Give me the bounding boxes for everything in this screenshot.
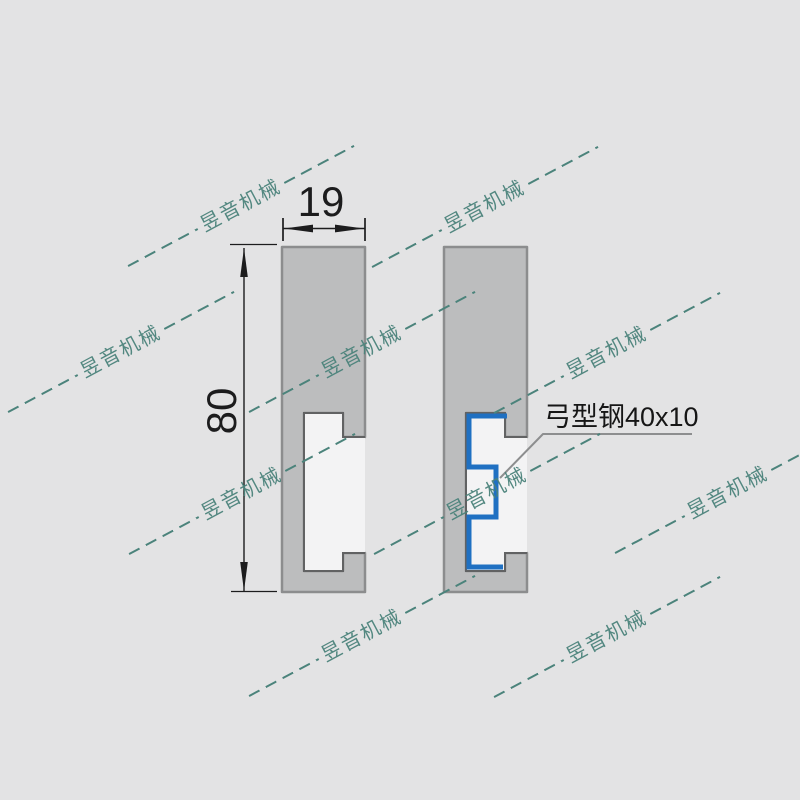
dimension-height: 80 xyxy=(198,245,277,592)
dimension-height-arrow-top xyxy=(240,248,248,277)
dimension-height-arrow-bottom xyxy=(240,562,248,591)
callout-label: 弓型钢40x10 xyxy=(544,402,699,432)
dimension-width-text: 19 xyxy=(298,178,345,225)
technical-drawing: 19 80 弓型钢40x10 xyxy=(0,0,800,800)
dimension-width: 19 xyxy=(283,178,365,241)
dimension-width-arrow-left xyxy=(284,225,313,233)
callout-bow-steel: 弓型钢40x10 xyxy=(500,402,699,478)
dimension-width-arrow-right xyxy=(335,225,364,233)
drawing-canvas: 19 80 弓型钢40x10 昱音机械昱音机械昱音机械昱音机械昱音机械昱音机械昱… xyxy=(0,0,800,800)
dimension-height-text: 80 xyxy=(198,388,245,435)
callout-leader-line xyxy=(500,434,692,478)
